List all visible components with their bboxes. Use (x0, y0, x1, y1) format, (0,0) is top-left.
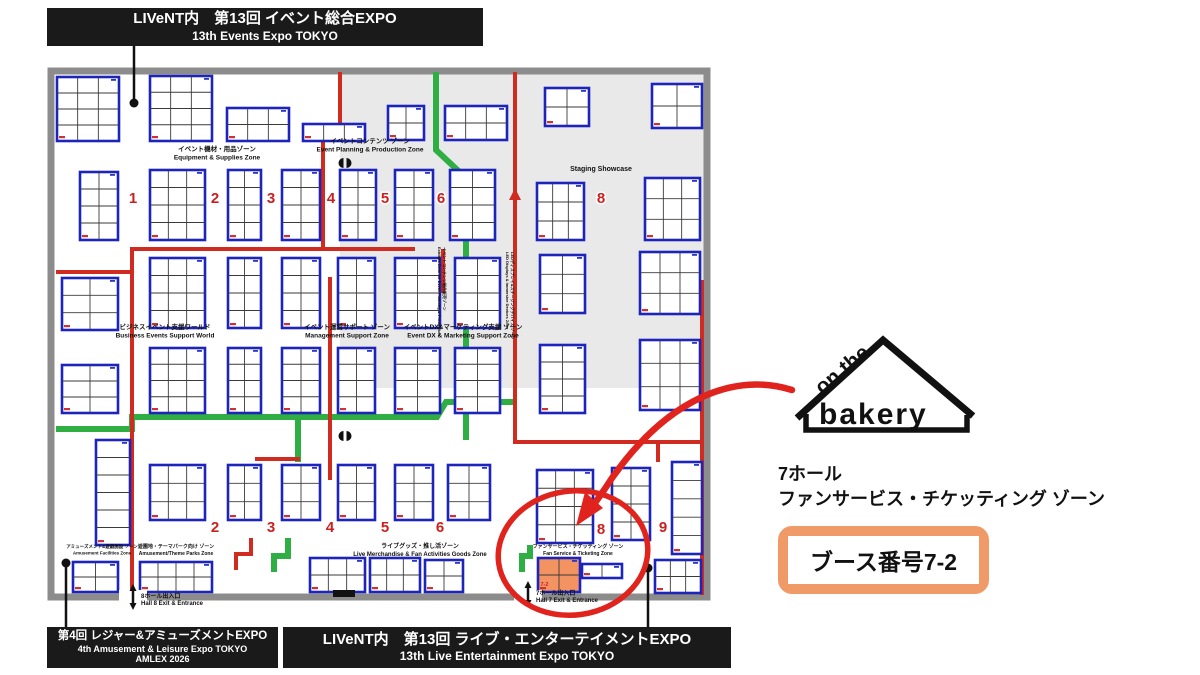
staging-showcase-label: Staging Showcase (570, 166, 632, 173)
zone-label-jp: 遊園地・テーマパーク向け ゾーン (138, 543, 214, 550)
zone-number: 2 (211, 190, 219, 207)
booth-number-mark (581, 90, 586, 92)
booth-number-mark (694, 464, 699, 466)
zone-number: 3 (267, 190, 275, 207)
callout-dot (62, 559, 71, 568)
zone-label-jp: ファンサービス・チケッティング ゾーン (533, 543, 624, 550)
stage-block (333, 590, 355, 597)
booth-number-mark (253, 350, 258, 352)
booth-number-mark (547, 121, 553, 123)
booth-number-mark (253, 467, 258, 469)
booth-number-mark (492, 350, 497, 352)
booth-number-mark (284, 235, 290, 237)
booth-number-mark (455, 562, 460, 564)
booth-number-mark (368, 172, 373, 174)
booth-number-mark (98, 540, 104, 542)
booth-block (672, 462, 702, 554)
zone-label-en: Business Events Support World (116, 333, 215, 340)
booth-7-2-label: 7-2 (541, 582, 549, 588)
callout-dot (130, 99, 139, 108)
zone-label-en: Management Support Zone (305, 333, 389, 340)
booth-number-mark (82, 235, 88, 237)
exit-label-en: Hall 8 Exit & Entrance (141, 601, 204, 607)
exit-label-jp: 7ホール出入口 (536, 589, 575, 597)
booth-number-mark (110, 367, 115, 369)
zone-label-en: Amusement/Theme Parks Zone (139, 551, 214, 557)
booth-number-mark (305, 136, 311, 138)
booth-number-mark (397, 515, 403, 517)
booth-number-mark (614, 566, 619, 568)
booth-number-mark (577, 347, 582, 349)
zone-number: 4 (327, 190, 336, 207)
booth-number-mark (284, 515, 290, 517)
booth-number-mark (229, 136, 235, 138)
booth-number-mark (642, 309, 648, 311)
booth-number-mark (674, 549, 680, 551)
booth-block (150, 465, 205, 520)
bakery-logo: on the bakery (793, 334, 993, 442)
zone-number: 3 (267, 519, 275, 536)
booth-block (537, 183, 584, 240)
zone-label-en: Equipment & Supplies Zone (174, 155, 261, 162)
booth-number-mark (204, 564, 209, 566)
booth-number-mark (230, 235, 236, 237)
zone-label-jp: アミューズメント&遊戯施設 ゾーン (66, 543, 138, 550)
booth-number-mark (694, 86, 699, 88)
booth-number-mark (642, 405, 648, 407)
bakery-logo-on-the: on the (811, 341, 874, 399)
banner-live-entertainment-expo: LIVeNT内 第13回 ライブ・エンターテイメントEXPO 13th Live… (283, 627, 731, 668)
booth-number-mark (416, 108, 421, 110)
booth-number-mark (111, 79, 116, 81)
banner-amusement-expo: 第4回 レジャー&アミューズメントEXPO 4th Amusement & Le… (47, 627, 278, 668)
zone-label-vertical-en: LED Displays & Immersive Devices Zone (505, 252, 510, 330)
banner-live-entertainment-expo-subtitle: 13th Live Entertainment Expo TOKYO (283, 649, 731, 664)
booth-number-mark (432, 260, 437, 262)
booth-number-mark (397, 408, 403, 410)
booth-number-mark (397, 323, 403, 325)
zone-number: 4 (326, 519, 335, 536)
booth-number-mark (425, 172, 430, 174)
booth-number-mark (122, 442, 127, 444)
booth-number-mark (539, 235, 545, 237)
booth-number-mark (281, 110, 286, 112)
booth-number-mark (152, 408, 158, 410)
booth-number-mark (230, 408, 236, 410)
booth-number-mark (425, 467, 430, 469)
booth-number-mark (642, 470, 647, 472)
zone-label-text: ファンサービス・チケッティング ゾーン (778, 487, 1105, 512)
booth-number-mark (390, 135, 396, 137)
banner-amusement-expo-subtitle: 4th Amusement & Leisure Expo TOKYO (47, 644, 278, 655)
booth-number-mark (284, 408, 290, 410)
booth-number-mark (59, 136, 65, 138)
booth-number-label: ブース番号7-2 (786, 534, 981, 586)
booth-number-mark (585, 472, 590, 474)
booth-number-mark (372, 587, 378, 589)
zone-label-jp: イベントコンテンツ ゾーン (330, 136, 410, 145)
booth-number-mark (152, 136, 158, 138)
banner-amusement-expo-title: 第4回 レジャー&アミューズメントEXPO (47, 630, 278, 644)
booth-number-mark (692, 180, 697, 182)
zone-number: 8 (597, 521, 605, 538)
zone-number: 6 (436, 519, 444, 536)
banner-events-expo: LIVeNT内 第13回 イベント総合EXPO 13th Events Expo… (47, 8, 483, 46)
booth-number-box: ブース番号7-2 (778, 526, 989, 594)
booth-number-mark (342, 235, 348, 237)
booth-number-mark (152, 235, 158, 237)
hall-label: 7ホール (778, 462, 1105, 487)
booth-number-mark (230, 323, 236, 325)
zone-label-en: Event DX & Marketing Support Zone (407, 333, 519, 340)
banner-live-entertainment-expo-title: LIVeNT内 第13回 ライブ・エンターテイメントEXPO (283, 631, 731, 650)
banner-events-expo-title: LIVeNT内 第13回 イベント総合EXPO (47, 10, 483, 29)
booth-number-mark (197, 172, 202, 174)
booth-number-mark (614, 535, 620, 537)
booth-number-mark (572, 560, 577, 562)
booth-number-mark (75, 587, 81, 589)
booth-number-mark (64, 408, 70, 410)
booth-number-mark (487, 172, 492, 174)
booth-number-mark (576, 185, 581, 187)
booth-block (645, 178, 700, 240)
zone-number: 6 (437, 190, 445, 207)
exit-label-en: Hall 7 Exit & Entrance (536, 598, 599, 604)
screenshot-root: 7-28ホール出入口Hall 8 Exit & Entrance7ホール出入口H… (0, 0, 1200, 675)
booth-number-mark (499, 108, 504, 110)
zone-label-vertical-en: Exhibits Zone for Event Planning & Produ… (437, 247, 442, 336)
booth-block (640, 252, 700, 314)
zone-number: 1 (129, 190, 137, 207)
booth-number-mark (492, 260, 497, 262)
booth-number-mark (152, 515, 158, 517)
exit-arrow-down (130, 603, 137, 610)
booth-number-mark (312, 350, 317, 352)
booth-number-mark (284, 323, 290, 325)
booth-number-mark (539, 538, 545, 540)
zone-label-jp: イベントDX&マーケティング支援 ゾーン (404, 322, 523, 331)
zone-label-jp: イベント機材・用品ゾーン (178, 144, 256, 153)
booth-number-mark (357, 560, 362, 562)
booth-number-mark (542, 408, 548, 410)
booth-number-mark (432, 350, 437, 352)
zone-label-en: Fan Service & Ticketing Zone (543, 551, 613, 557)
booth-number-mark (197, 467, 202, 469)
booth-number-mark (457, 408, 463, 410)
booth-number-mark (340, 515, 346, 517)
booth-number-mark (253, 260, 258, 262)
zone-number: 8 (597, 190, 605, 207)
booth-number-mark (397, 235, 403, 237)
zone-number: 2 (211, 519, 219, 536)
booth-number-mark (367, 260, 372, 262)
booth-number-mark (482, 467, 487, 469)
booth-number-mark (312, 172, 317, 174)
booth-number-mark (197, 350, 202, 352)
booth-number-mark (110, 280, 115, 282)
booth-number-mark (340, 408, 346, 410)
booth-number-mark (142, 587, 148, 589)
zone-label-en: Event Planning & Production Zone (317, 147, 424, 154)
booth-number-mark (412, 560, 417, 562)
zone-label-jp: イベント運営サポート ゾーン (304, 322, 390, 331)
booth-number-mark (64, 325, 70, 327)
booth-number-mark (657, 588, 663, 590)
booth-number-mark (692, 342, 697, 344)
booth-number-mark (452, 235, 458, 237)
booth-number-mark (450, 515, 456, 517)
booth-number-mark (693, 562, 698, 564)
banner-amusement-expo-edition: AMLEX 2026 (47, 654, 278, 665)
booth-number-mark (542, 308, 548, 310)
booth-number-mark (312, 587, 318, 589)
booth-number-mark (367, 350, 372, 352)
booth-number-mark (584, 573, 590, 575)
booth-info-panel: 7ホール ファンサービス・チケッティング ゾーン ブース番号7-2 (778, 462, 1105, 594)
zone-label-en: Live Merchandise & Fan Activities Goods … (353, 552, 487, 558)
zone-label-jp: ビジネスイベント支援ワールド (120, 322, 211, 331)
zone-label-en: Amusement Facilities Zone (73, 551, 132, 556)
booth-number-mark (312, 260, 317, 262)
zone-number: 5 (381, 519, 389, 536)
bakery-logo-bakery: bakery (819, 398, 928, 431)
booth-number-mark (692, 254, 697, 256)
zone-number: 9 (659, 519, 667, 536)
booth-number-mark (197, 260, 202, 262)
booth-number-mark (110, 564, 115, 566)
booth-number-mark (577, 257, 582, 259)
banner-events-expo-subtitle: 13th Events Expo TOKYO (47, 29, 483, 44)
booth-number-mark (447, 135, 453, 137)
booth-number-mark (654, 123, 660, 125)
booth-number-mark (647, 235, 653, 237)
booth-number-mark (312, 467, 317, 469)
booth-number-mark (110, 174, 115, 176)
booth-number-mark (253, 172, 258, 174)
booth-number-mark (357, 126, 362, 128)
exit-label-jp: 8ホール出入口 (141, 592, 180, 600)
booth-number-mark (367, 467, 372, 469)
zone-number: 5 (381, 190, 389, 207)
zone-label-jp: ライブグッズ・推し活ゾーン (381, 542, 459, 550)
booth-number-mark (204, 78, 209, 80)
booth-number-mark (230, 515, 236, 517)
booth-number-mark (427, 587, 433, 589)
